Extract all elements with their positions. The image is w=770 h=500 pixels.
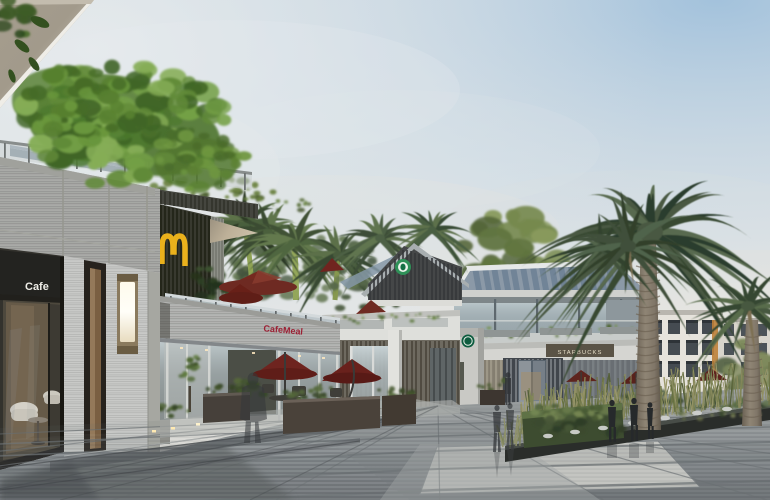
svg-text:Cafe: Cafe: [25, 281, 49, 293]
svg-text:STARBUCKS: STARBUCKS: [558, 350, 603, 356]
